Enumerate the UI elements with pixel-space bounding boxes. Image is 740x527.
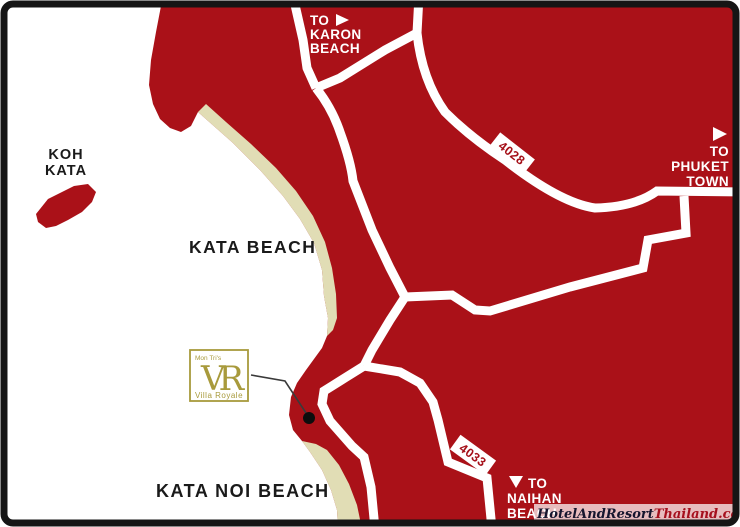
karon-name-label: KARON bbox=[310, 27, 362, 42]
location-dot bbox=[303, 412, 315, 424]
phuket-to-label: TO bbox=[710, 144, 729, 159]
kata-beach-label: KATA BEACH bbox=[189, 237, 316, 257]
phuket-name-label: PHUKET bbox=[671, 159, 729, 174]
kata-noi-beach-label: KATA NOI BEACH bbox=[156, 481, 330, 501]
villa-royale-logo: Mon Tri's VR Villa Royale bbox=[190, 350, 248, 401]
koh-kata-label-line2: KATA bbox=[45, 163, 87, 179]
phuket-town-label: TOWN bbox=[686, 174, 729, 189]
naihan-name-label: NAIHAN bbox=[507, 491, 562, 506]
logo-brand-bottom: Villa Royale bbox=[195, 391, 243, 400]
naihan-to-label: TO bbox=[528, 476, 547, 491]
map-canvas: 4028 4033 Mon Tri's VR Villa Royale KOH … bbox=[0, 0, 740, 527]
kata-beach-map: 4028 4033 Mon Tri's VR Villa Royale KOH … bbox=[0, 0, 740, 527]
karon-to-label: TO bbox=[310, 13, 329, 28]
karon-beach-label: BEACH bbox=[310, 41, 360, 56]
koh-kata-label-line1: KOH bbox=[48, 147, 83, 163]
